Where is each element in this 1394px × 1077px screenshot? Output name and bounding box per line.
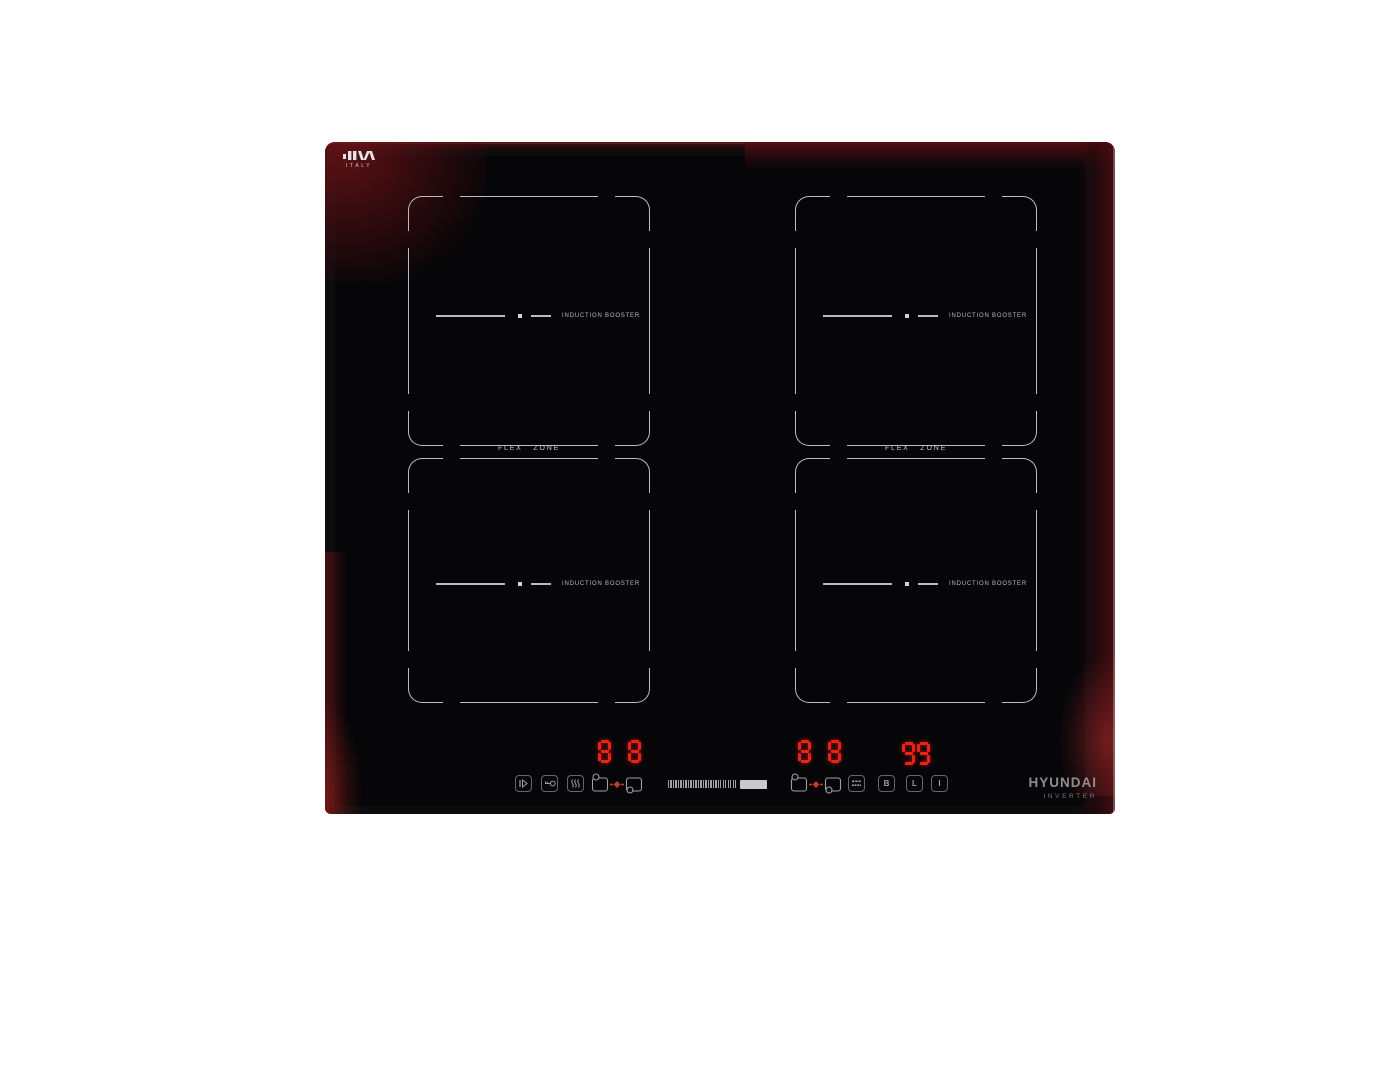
cooking-zone-front-left: INDUCTION BOOSTER — [408, 458, 650, 703]
flex-zone-label-right: FLEX ZONE — [856, 445, 976, 452]
zone-corner-mark — [795, 196, 830, 231]
slider-fill-indicator — [740, 780, 767, 789]
zone-corner-mark — [615, 458, 650, 493]
led-digit — [917, 742, 930, 765]
zone-edge-mark — [847, 458, 985, 459]
brand-technology-label: INVERTER — [1028, 793, 1097, 800]
slider-tick — [715, 780, 716, 788]
slider-tick — [703, 780, 704, 788]
zone-edge-mark — [408, 248, 409, 394]
led-digit — [628, 740, 641, 763]
zone-edge-mark — [649, 510, 650, 651]
zone-corner-mark — [615, 668, 650, 703]
zone-corner-mark — [1002, 196, 1037, 231]
bridge-zones-button-left[interactable] — [591, 772, 643, 796]
zone-corner-mark — [408, 411, 443, 446]
slider-tick — [710, 780, 711, 788]
slider-tick — [678, 780, 679, 788]
flex-zone-label-left: FLEX ZONE — [469, 445, 589, 452]
cooking-zone-front-right: INDUCTION BOOSTER — [795, 458, 1037, 703]
glass-maker-logo-mark — [343, 150, 383, 162]
slider-tick — [708, 780, 709, 788]
brand-block: HYUNDAI INVERTER — [1028, 775, 1097, 800]
glass-maker-country-label: ITALY — [346, 163, 399, 169]
zone-corner-mark — [1002, 458, 1037, 493]
zone-edge-mark — [1036, 510, 1037, 651]
key-icon — [544, 778, 556, 789]
cooking-zone-rear-left: INDUCTION BOOSTER — [408, 196, 650, 446]
zone-edge-mark — [460, 702, 598, 703]
glass-reflection — [325, 142, 1115, 152]
zone-corner-mark — [408, 196, 443, 231]
page-background: { "colors": { "led": "#ef2118", "line": … — [0, 0, 1394, 1077]
lock-button[interactable]: L — [906, 775, 923, 792]
slider-tick — [683, 780, 684, 788]
zone-corner-mark — [1002, 668, 1037, 703]
slider-tick — [733, 780, 734, 788]
pause-icon — [518, 778, 529, 789]
slider-tick — [730, 780, 731, 788]
boost-button[interactable]: B — [878, 775, 895, 792]
zone-edge-mark — [460, 458, 598, 459]
induction-cooktop: ITALY INDUCTION BOOSTER INDUCTION BOOSTE… — [325, 142, 1115, 814]
zone-center-mark: INDUCTION BOOSTER — [436, 313, 640, 319]
slider-tick — [735, 780, 736, 788]
slider-tick — [670, 780, 671, 788]
zone-edge-mark — [847, 196, 985, 197]
power-level-display-left — [598, 740, 641, 763]
slider-tick — [725, 780, 726, 788]
slider-tick — [668, 780, 669, 788]
slider-tick — [718, 780, 719, 788]
slider-tick — [700, 780, 701, 788]
zone-edge-mark — [795, 510, 796, 651]
zone-corner-mark — [795, 411, 830, 446]
power-slider[interactable] — [668, 779, 770, 789]
slider-tick — [680, 780, 681, 788]
slider-tick — [673, 780, 674, 788]
slider-tick — [693, 780, 694, 788]
slider-tick — [698, 780, 699, 788]
bridge-zones-button-right[interactable] — [790, 772, 842, 796]
slider-tick — [720, 780, 721, 788]
zone-corner-mark — [795, 668, 830, 703]
zone-corner-mark — [615, 196, 650, 231]
zone-edge-mark — [847, 702, 985, 703]
zone-corner-mark — [795, 458, 830, 493]
auto-menu-icon — [851, 778, 862, 789]
brand-logo: HYUNDAI — [1028, 775, 1097, 790]
keep-warm-button[interactable] — [567, 775, 584, 792]
led-digit — [902, 742, 915, 765]
induction-booster-label: INDUCTION BOOSTER — [562, 313, 640, 319]
slider-tick — [690, 780, 691, 788]
slider-tick — [713, 780, 714, 788]
bridge-zones-icon — [790, 772, 842, 796]
slider-tick — [728, 780, 729, 788]
glass-maker-logo: ITALY — [343, 150, 399, 169]
slider-tick — [688, 780, 689, 788]
induction-booster-label: INDUCTION BOOSTER — [562, 581, 640, 587]
zone-edge-mark — [795, 248, 796, 394]
zone-corner-mark — [615, 411, 650, 446]
bridge-zones-icon — [591, 772, 643, 796]
induction-booster-label: INDUCTION BOOSTER — [949, 581, 1027, 587]
slider-tick — [675, 780, 676, 788]
cooking-zone-rear-right: INDUCTION BOOSTER — [795, 196, 1037, 446]
power-level-display-right — [798, 740, 841, 763]
glass-edge-highlight — [325, 142, 1115, 144]
zone-center-mark: INDUCTION BOOSTER — [823, 581, 1027, 587]
auto-menu-button[interactable] — [848, 775, 865, 792]
slider-tick — [695, 780, 696, 788]
pause-button[interactable] — [515, 775, 532, 792]
zone-corner-mark — [408, 458, 443, 493]
slider-tick — [723, 780, 724, 788]
zone-edge-mark — [460, 196, 598, 197]
slider-tick — [685, 780, 686, 788]
keep-warm-icon — [570, 778, 581, 789]
zone-edge-mark — [1036, 248, 1037, 394]
power-button[interactable]: I — [931, 775, 948, 792]
zone-corner-mark — [1002, 411, 1037, 446]
led-digit — [798, 740, 811, 763]
zone-center-mark: INDUCTION BOOSTER — [823, 313, 1027, 319]
child-lock-button[interactable] — [541, 775, 558, 792]
zone-corner-mark — [408, 668, 443, 703]
glass-edge-highlight — [1113, 142, 1115, 814]
led-digit — [828, 740, 841, 763]
timer-display — [902, 742, 930, 765]
induction-booster-label: INDUCTION BOOSTER — [949, 313, 1027, 319]
slider-tick — [705, 780, 706, 788]
zone-edge-mark — [408, 510, 409, 651]
led-digit — [598, 740, 611, 763]
zone-center-mark: INDUCTION BOOSTER — [436, 581, 640, 587]
zone-edge-mark — [649, 248, 650, 394]
